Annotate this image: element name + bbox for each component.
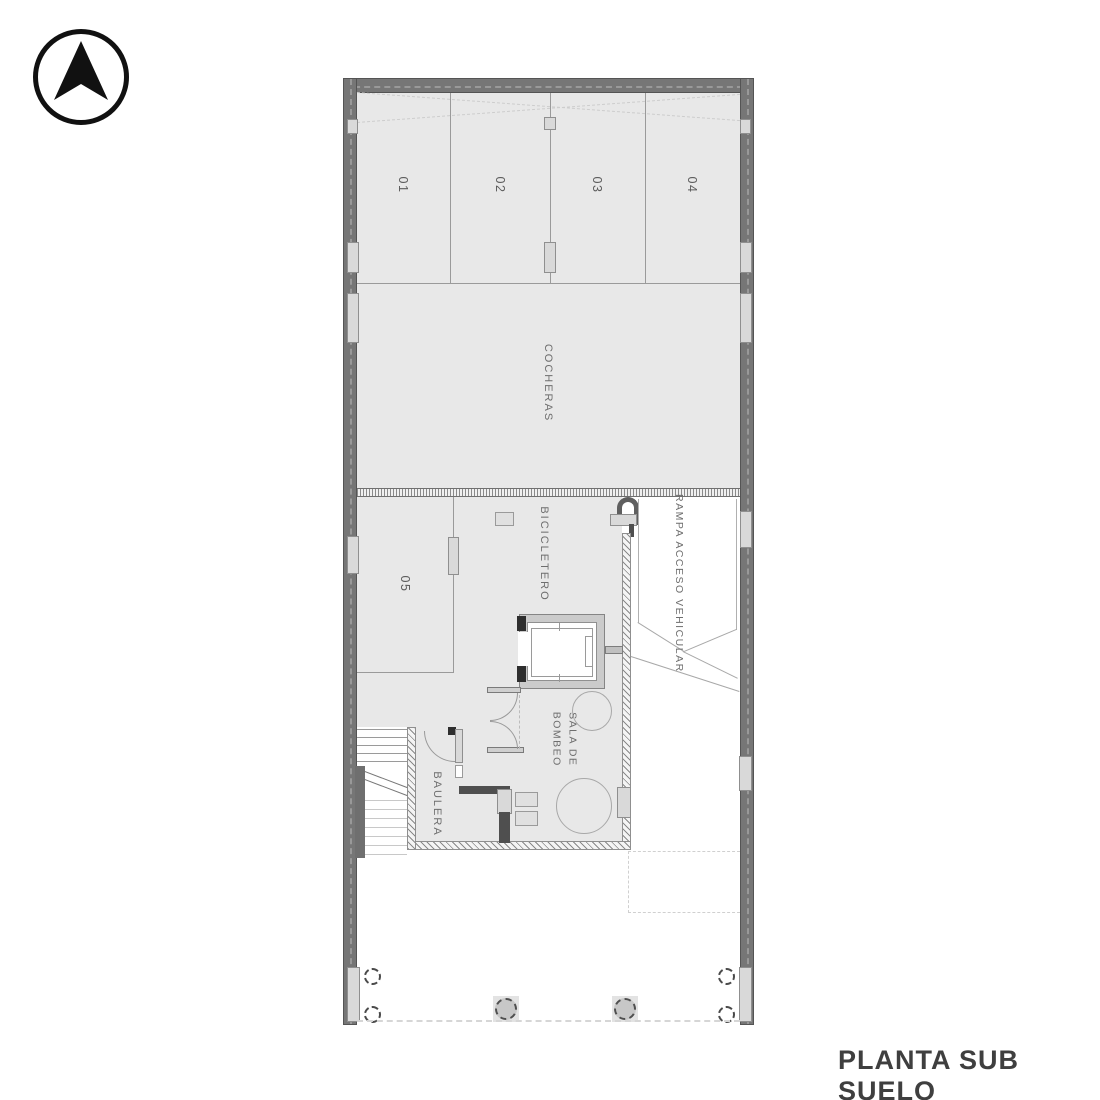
elevator-rail-tick-top <box>559 623 560 631</box>
pilaster <box>544 242 556 273</box>
column-circle <box>495 998 517 1020</box>
column-circle <box>614 998 636 1020</box>
pilaster <box>740 293 752 343</box>
stall-divider-1 <box>450 93 451 283</box>
baulera-door-leaf <box>455 729 463 763</box>
pilaster <box>740 242 752 273</box>
footing-circle <box>364 968 381 985</box>
stall5-right-line <box>453 497 454 673</box>
pilaster <box>740 119 751 134</box>
pilaster <box>347 967 360 1022</box>
area-label-cocheras: COCHERAS <box>542 325 554 441</box>
pit-outline-bottom <box>628 912 740 913</box>
elevator-rail-tick-bottom <box>559 674 560 682</box>
elevator-jamb-top <box>517 616 526 631</box>
pilaster <box>617 787 631 818</box>
page-title: PLANTA SUB SUELO <box>838 1045 1100 1100</box>
area-label-sala-de-bombeo: SALA DE BOMBEO <box>548 708 581 770</box>
floor-plan-canvas: 01 02 03 04 COCHERAS 05 BICICLETERO RAMP… <box>0 0 1100 1100</box>
stall-label-04: 04 <box>685 170 699 200</box>
pilaster <box>347 242 359 273</box>
dark-wall-vertical <box>499 812 510 843</box>
wall-right <box>740 78 754 1025</box>
hatched-wall-stair <box>407 727 416 850</box>
stall-front-line <box>357 283 740 284</box>
elevator-jamb-bottom <box>517 666 526 682</box>
double-door-leaf-line <box>519 695 520 749</box>
pump-equipment <box>515 811 538 826</box>
area-label-bicicletero: BICICLETERO <box>538 506 550 602</box>
elevator-door-opening <box>518 632 528 666</box>
pilaster <box>497 789 512 814</box>
north-arrow-glyph <box>38 34 124 120</box>
area-label-baulera: BAULERA <box>431 766 443 842</box>
stall5-bottom-line <box>357 672 454 673</box>
north-arrow-icon <box>33 29 129 125</box>
pilaster <box>347 536 359 574</box>
pilaster <box>448 537 459 575</box>
baulera-door-stop <box>455 765 463 778</box>
equipment-pad <box>495 512 514 526</box>
wall-top <box>343 78 754 93</box>
ramp-lane-right <box>736 499 737 630</box>
ramp-chevron-right <box>684 629 737 652</box>
elevator-cab <box>531 628 593 677</box>
pilaster <box>739 756 752 791</box>
stall-label-01: 01 <box>396 170 410 200</box>
pit-outline-top <box>628 851 740 852</box>
pit-outline-left <box>628 851 629 913</box>
pilaster <box>740 511 752 548</box>
elevator-connector-wall <box>605 646 623 654</box>
hatched-wall-bottom <box>407 841 631 850</box>
elevator-counterweight <box>585 636 593 667</box>
stair-side-wall <box>355 766 365 858</box>
stall-divider-3 <box>645 93 646 283</box>
pilaster <box>739 967 752 1022</box>
divider-marker <box>544 117 556 130</box>
pilaster <box>347 293 359 343</box>
stall-label-05: 05 <box>398 569 412 599</box>
footing-circle <box>718 968 735 985</box>
pilaster <box>347 119 358 134</box>
pump-equipment <box>515 792 538 807</box>
stall-label-03: 03 <box>590 170 604 200</box>
stair-treads-upper <box>357 729 407 767</box>
area-label-rampa: RAMPA ACCESO VEHICULAR <box>673 494 685 650</box>
ramp-lane-left <box>638 499 639 623</box>
ramp-slope-line <box>631 656 740 692</box>
pump-tank-large <box>556 778 612 834</box>
property-line-dashed <box>357 1020 740 1022</box>
stall-label-02: 02 <box>493 170 507 200</box>
